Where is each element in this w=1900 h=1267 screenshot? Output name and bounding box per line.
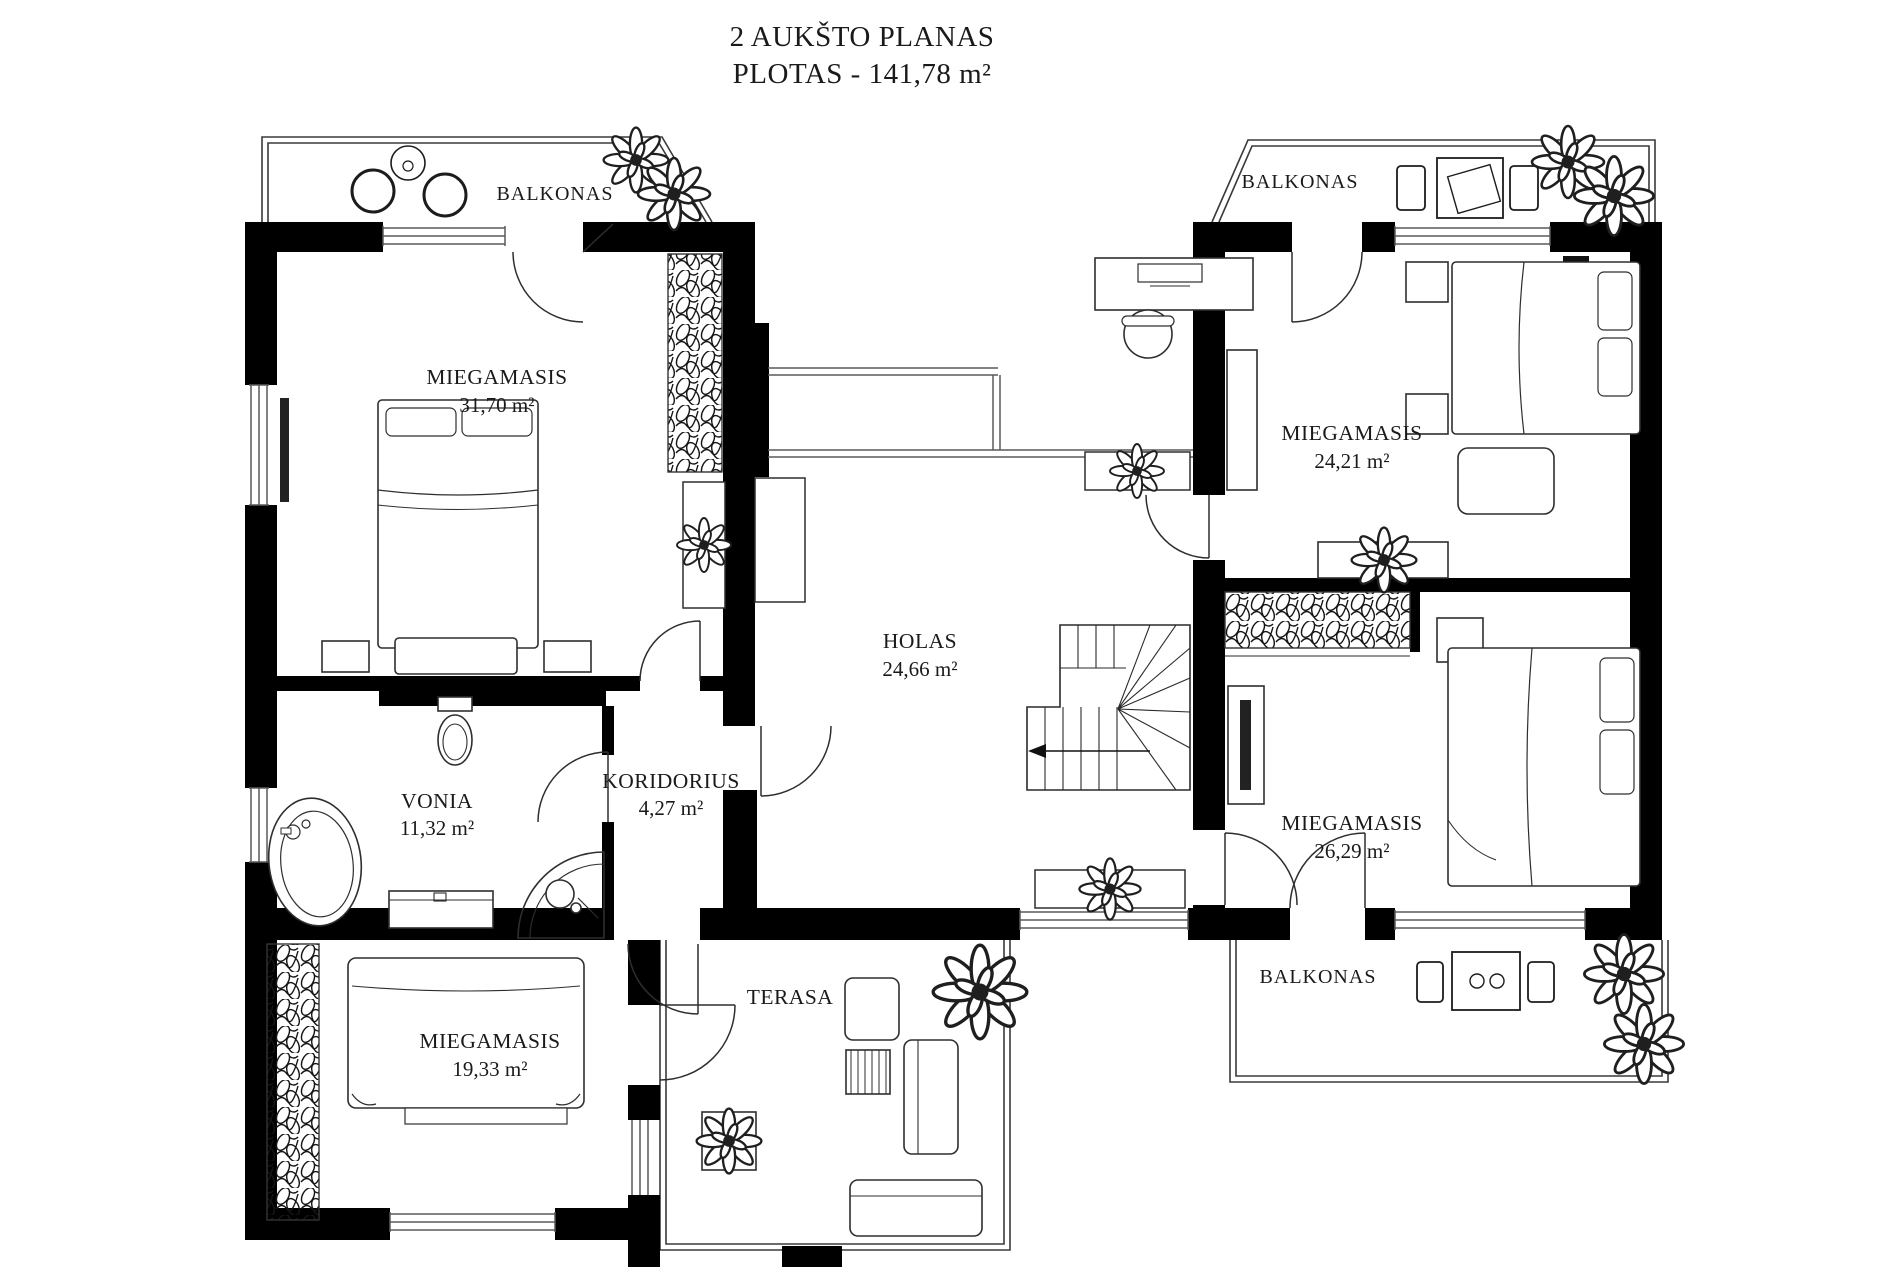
plan-title-line2: PLOTAS - 141,78 m²: [733, 58, 992, 90]
room-label-bedroom2: MIEGAMASIS 24,21 m²: [1281, 421, 1422, 473]
plant-icon: [1079, 858, 1140, 919]
plant-icon: [677, 518, 731, 572]
armchair-terrace: [845, 978, 899, 1040]
tv-cabinet-bedroom3: [1228, 686, 1264, 804]
plant-icon: [933, 945, 1027, 1039]
svg-text:24,21 m²: 24,21 m²: [1314, 449, 1389, 473]
room-label-terrace: TERASA: [747, 985, 834, 1009]
sink-vanity: [389, 891, 493, 928]
side-table-terrace: [846, 1050, 890, 1094]
svg-text:11,32 m²: 11,32 m²: [400, 816, 474, 840]
ottoman-bedroom2: [1458, 448, 1554, 514]
svg-text:19,33 m²: 19,33 m²: [452, 1057, 527, 1081]
bedroom3-furniture: [1228, 618, 1640, 886]
plant-icon: [1110, 444, 1164, 498]
wardrobe-bedroom4: [267, 944, 319, 1220]
plan-title: 2 AUKŠTO PLANAS PLOTAS - 141,78 m²: [730, 20, 995, 90]
floor-plan-page: 2 AUKŠTO PLANAS PLOTAS - 141,78 m²: [0, 0, 1900, 1267]
svg-text:HOLAS: HOLAS: [883, 629, 957, 653]
svg-text:24,66 m²: 24,66 m²: [882, 657, 957, 681]
room-label-balcony-top-left: BALKONAS: [497, 183, 614, 205]
room-label-bedroom3: MIEGAMASIS 26,29 m²: [1281, 811, 1422, 863]
balcony-bottom-right-furniture: [1417, 934, 1684, 1083]
flower-icon: [1604, 1004, 1683, 1083]
svg-text:VONIA: VONIA: [401, 789, 473, 813]
svg-text:MIEGAMASIS: MIEGAMASIS: [426, 365, 567, 389]
round-chair: [352, 170, 394, 212]
svg-text:4,27 m²: 4,27 m²: [639, 796, 704, 820]
cup: [1470, 974, 1484, 988]
wardrobe-bedroom1: [668, 254, 722, 472]
room-label-balcony-top-right: BALKONAS: [1242, 171, 1359, 193]
room-label-corridor: KORIDORIUS 4,27 m²: [602, 769, 740, 820]
chair: [1528, 962, 1554, 1002]
svg-text:MIEGAMASIS: MIEGAMASIS: [1281, 421, 1422, 445]
svg-text:MIEGAMASIS: MIEGAMASIS: [419, 1029, 560, 1053]
plant-icon: [1352, 528, 1417, 593]
table: [1452, 952, 1520, 1010]
balcony-top-right-furniture: [1397, 126, 1654, 236]
dresser-hall-2: [755, 478, 805, 602]
cup: [1490, 974, 1504, 988]
sofa-terrace-horizontal: [850, 1180, 982, 1236]
chair: [1397, 166, 1425, 210]
wall-unit-bedroom2: [1227, 350, 1257, 490]
svg-text:MIEGAMASIS: MIEGAMASIS: [1281, 811, 1422, 835]
bed-bench-bedroom1: [395, 638, 517, 674]
bed-bedroom1: [378, 400, 538, 648]
nightstand-right-bedroom1: [544, 641, 591, 672]
office-chair-bedroom2: [1122, 310, 1174, 358]
wardrobe-bedroom3: [1225, 592, 1410, 648]
stairs: [1027, 625, 1190, 790]
desk-bedroom2: [1095, 258, 1253, 310]
round-chair: [424, 174, 466, 216]
toilet: [438, 697, 472, 765]
cup: [403, 161, 413, 171]
svg-text:26,29 m²: 26,29 m²: [1314, 839, 1389, 863]
svg-text:KORIDORIUS: KORIDORIUS: [602, 769, 740, 793]
room-label-balcony-bottom-right: BALKONAS: [1260, 966, 1377, 988]
tv-panel-bedroom1: [280, 398, 289, 502]
nightstand-left-bedroom1: [322, 641, 369, 672]
hall-railing: [768, 368, 1193, 457]
bedroom1-furniture: [280, 398, 591, 674]
planter-terrace: [697, 1109, 762, 1174]
bed-bedroom2: [1452, 262, 1640, 434]
room-label-bath: VONIA 11,32 m²: [400, 789, 474, 840]
chair: [1510, 166, 1538, 210]
nightstand-bedroom2-top: [1406, 262, 1448, 302]
svg-text:31,70 m²: 31,70 m²: [459, 393, 534, 417]
flower-icon: [1574, 156, 1653, 235]
plan-title-line1: 2 AUKŠTO PLANAS: [730, 20, 995, 53]
room-label-hall: HOLAS 24,66 m²: [882, 629, 957, 681]
floor-plan-svg: 2 AUKŠTO PLANAS PLOTAS - 141,78 m²: [0, 0, 1900, 1267]
sofa-terrace-vertical: [904, 1040, 958, 1154]
flower-icon: [1584, 934, 1663, 1013]
bed-bedroom3: [1448, 648, 1640, 886]
chair: [1417, 962, 1443, 1002]
flower-icon: [638, 158, 710, 230]
